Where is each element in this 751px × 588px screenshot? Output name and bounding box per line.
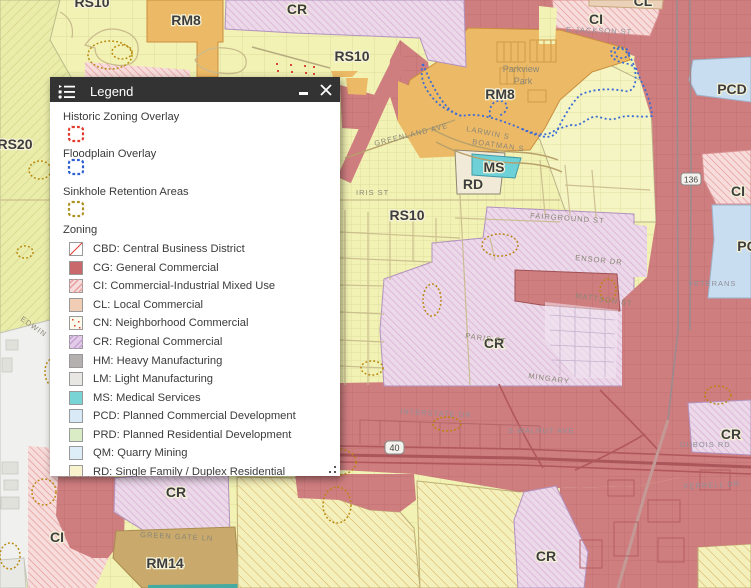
svg-text:RM14: RM14 (146, 555, 184, 571)
svg-text:RD: RD (463, 176, 483, 192)
svg-text:RM8: RM8 (485, 86, 515, 102)
svg-text:CR: CR (166, 484, 186, 500)
svg-text:PCD: PCD (717, 81, 747, 97)
svg-text:CI: CI (731, 183, 745, 199)
svg-text:RS10: RS10 (74, 0, 109, 10)
svg-text:CR: CR (536, 548, 556, 564)
svg-text:CL: CL (634, 0, 653, 9)
svg-text:CI: CI (50, 529, 64, 545)
svg-text:Parkview: Parkview (503, 64, 540, 74)
svg-text:S WALNUT AVE: S WALNUT AVE (508, 426, 574, 435)
svg-text:DUBOIS RD: DUBOIS RD (680, 440, 731, 449)
svg-text:RS10: RS10 (389, 207, 424, 223)
svg-text:RM8: RM8 (171, 12, 201, 28)
svg-text:VETERANS: VETERANS (688, 279, 736, 288)
svg-text:CI: CI (589, 11, 603, 27)
svg-text:RS20: RS20 (0, 136, 33, 152)
svg-text:CR: CR (287, 1, 307, 17)
svg-text:MS: MS (484, 159, 505, 175)
svg-text:136: 136 (684, 175, 698, 185)
svg-text:40: 40 (389, 443, 399, 453)
svg-text:Park: Park (514, 76, 533, 86)
svg-text:RS10: RS10 (334, 48, 369, 64)
svg-text:IRIS ST: IRIS ST (356, 188, 389, 197)
svg-text:PC: PC (737, 238, 751, 254)
